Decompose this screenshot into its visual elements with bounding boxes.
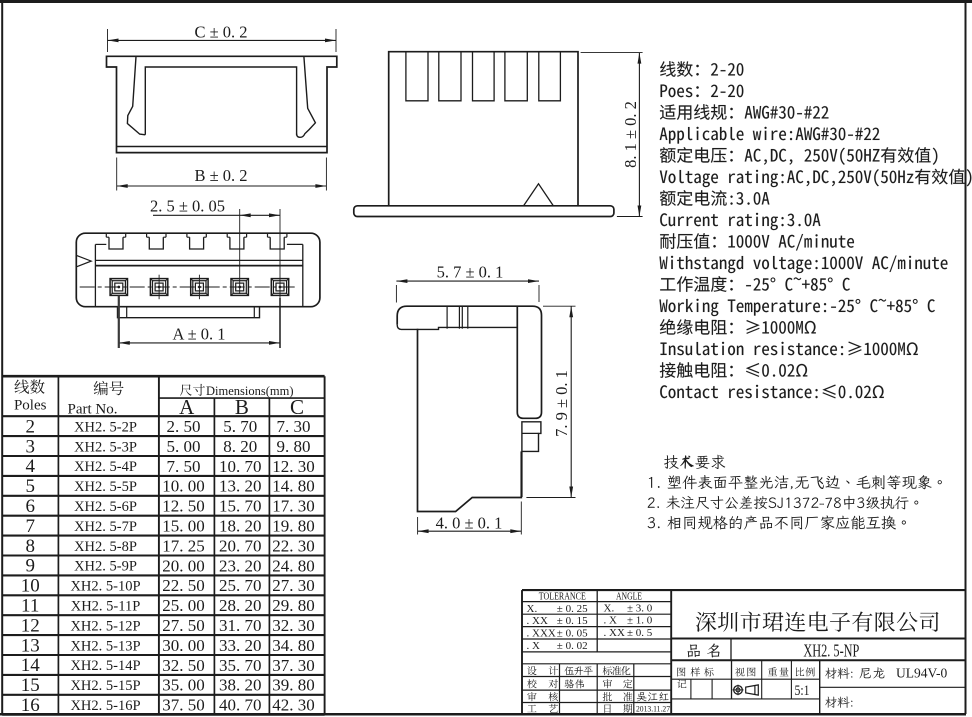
svg-text:17. 25: 17. 25 [162, 536, 205, 555]
svg-text:5: 5 [25, 476, 35, 497]
svg-text:8. 1 ± 0. 2: 8. 1 ± 0. 2 [621, 101, 640, 168]
svg-text:7. 30: 7. 30 [277, 417, 311, 436]
svg-text:3: 3 [25, 436, 35, 457]
svg-text:35. 00: 35. 00 [162, 676, 205, 695]
svg-text:. X: . X [527, 640, 541, 652]
svg-text:B: B [235, 395, 249, 419]
svg-text:± 0. 15: ± 0. 15 [557, 615, 588, 627]
svg-text:XH2. 5-12P: XH2. 5-12P [70, 618, 140, 634]
svg-text:XH2. 5-3P: XH2. 5-3P [74, 439, 137, 455]
svg-text:Dimensions(mm): Dimensions(mm) [206, 384, 294, 398]
svg-text:X.: X. [604, 602, 615, 614]
svg-text:2. 50: 2. 50 [167, 417, 201, 436]
svg-text:± 0. 02: ± 0. 02 [557, 640, 588, 652]
svg-text:37. 30: 37. 30 [272, 656, 315, 675]
svg-text:X.: X. [527, 603, 538, 615]
svg-text:27. 50: 27. 50 [162, 616, 205, 635]
svg-text:18. 20: 18. 20 [219, 517, 262, 536]
svg-text:20. 70: 20. 70 [219, 536, 262, 555]
svg-text:± 1. 0: ± 1. 0 [627, 615, 653, 627]
svg-text:13: 13 [21, 635, 40, 656]
svg-text:Poles: Poles [14, 398, 47, 414]
svg-text:15. 00: 15. 00 [162, 517, 205, 536]
svg-text:XH2. 5-14P: XH2. 5-14P [70, 658, 140, 674]
svg-text:. XXX: . XXX [527, 628, 556, 640]
svg-text:20. 00: 20. 00 [162, 556, 205, 575]
svg-text:4. 0 ± 0. 1: 4. 0 ± 0. 1 [436, 513, 503, 532]
svg-text:± 0. 05: ± 0. 05 [557, 628, 588, 640]
svg-text:14: 14 [21, 655, 41, 676]
svg-text:34. 80: 34. 80 [272, 636, 315, 655]
svg-text:4: 4 [25, 456, 35, 477]
svg-text:10. 70: 10. 70 [219, 457, 262, 476]
svg-text:32. 50: 32. 50 [162, 656, 205, 675]
svg-text:22. 30: 22. 30 [272, 536, 315, 555]
svg-text:32. 30: 32. 30 [272, 616, 315, 635]
svg-text:24. 80: 24. 80 [272, 556, 315, 575]
svg-text:XH2. 5-7P: XH2. 5-7P [74, 519, 137, 535]
svg-text:A ± 0. 1: A ± 0. 1 [172, 325, 225, 344]
svg-text:35. 70: 35. 70 [219, 656, 262, 675]
svg-text:A: A [179, 395, 195, 419]
svg-text:± 0. 25: ± 0. 25 [557, 603, 588, 615]
svg-text:31. 70: 31. 70 [219, 616, 262, 635]
svg-text:13. 20: 13. 20 [219, 477, 262, 496]
svg-text:TOLERANCE: TOLERANCE [539, 590, 586, 602]
svg-text:17. 30: 17. 30 [272, 497, 315, 516]
svg-text:XH2. 5-NP: XH2. 5-NP [803, 640, 859, 660]
svg-text:9. 80: 9. 80 [277, 437, 311, 456]
svg-text:XH2. 5-10P: XH2. 5-10P [70, 579, 140, 595]
svg-text:C ± 0. 2: C ± 0. 2 [194, 23, 247, 42]
svg-text:XH2. 5-11P: XH2. 5-11P [71, 599, 141, 615]
svg-text:B ± 0. 2: B ± 0. 2 [194, 166, 247, 185]
svg-text:XH2. 5-4P: XH2. 5-4P [74, 459, 137, 475]
svg-text:XH2. 5-9P: XH2. 5-9P [74, 559, 137, 575]
svg-text:XH2. 5-5P: XH2. 5-5P [74, 479, 137, 495]
svg-text:42. 30: 42. 30 [272, 696, 315, 715]
svg-text:XH2. 5-13P: XH2. 5-13P [70, 638, 140, 654]
svg-text:XH2. 5-15P: XH2. 5-15P [70, 678, 140, 694]
svg-text:37. 50: 37. 50 [162, 696, 205, 715]
svg-text:15: 15 [21, 675, 40, 696]
svg-text:16: 16 [21, 695, 40, 716]
svg-text:11: 11 [21, 596, 39, 617]
svg-text:15. 70: 15. 70 [219, 497, 262, 516]
svg-text:7: 7 [25, 516, 35, 537]
svg-text:38. 20: 38. 20 [219, 676, 262, 695]
svg-text:10. 00: 10. 00 [162, 477, 205, 496]
svg-text:C: C [290, 395, 304, 419]
svg-text:28. 20: 28. 20 [219, 596, 262, 615]
svg-text:XH2. 5-6P: XH2. 5-6P [74, 499, 137, 515]
svg-text:19. 80: 19. 80 [272, 517, 315, 536]
svg-text:25. 00: 25. 00 [162, 596, 205, 615]
svg-text:XH2. 5-8P: XH2. 5-8P [74, 539, 137, 555]
svg-text:Part No.: Part No. [68, 402, 118, 418]
svg-text:40. 70: 40. 70 [219, 696, 262, 715]
svg-text:5. 70: 5. 70 [223, 417, 257, 436]
svg-text:2: 2 [25, 416, 35, 437]
svg-text:14. 80: 14. 80 [272, 477, 315, 496]
svg-text:. XX: . XX [527, 615, 548, 627]
svg-text:23. 20: 23. 20 [219, 556, 262, 575]
svg-text:22. 50: 22. 50 [162, 576, 205, 595]
svg-text:5. 7 ± 0. 1: 5. 7 ± 0. 1 [437, 263, 504, 282]
svg-text:8: 8 [25, 536, 35, 557]
svg-text:5. 00: 5. 00 [167, 437, 201, 456]
svg-text:39. 80: 39. 80 [272, 676, 315, 695]
svg-text:25. 70: 25. 70 [219, 576, 262, 595]
svg-text:7. 9 ± 0. 1: 7. 9 ± 0. 1 [552, 370, 571, 437]
svg-text:12. 30: 12. 30 [272, 457, 315, 476]
svg-text:. XX: . XX [604, 627, 625, 639]
svg-text:± 0. 5: ± 0. 5 [627, 627, 653, 639]
svg-text:XH2. 5-16P: XH2. 5-16P [70, 698, 140, 714]
svg-text:12: 12 [21, 615, 40, 636]
svg-text:8. 20: 8. 20 [223, 437, 257, 456]
svg-text:10: 10 [21, 576, 40, 597]
svg-text:12. 50: 12. 50 [162, 497, 205, 516]
svg-text:XH2. 5-2P: XH2. 5-2P [74, 419, 137, 435]
svg-text:7. 50: 7. 50 [167, 457, 201, 476]
svg-text:± 3. 0: ± 3. 0 [627, 602, 653, 614]
svg-text:29. 80: 29. 80 [272, 596, 315, 615]
svg-text:2. 5 ± 0. 05: 2. 5 ± 0. 05 [150, 197, 225, 216]
svg-text:27. 30: 27. 30 [272, 576, 315, 595]
svg-text:6: 6 [25, 496, 35, 517]
svg-text:5:1: 5:1 [795, 683, 810, 699]
svg-text:33. 20: 33. 20 [219, 636, 262, 655]
svg-text:UL94V-0: UL94V-0 [896, 666, 948, 681]
svg-text:ANGLE: ANGLE [616, 590, 642, 602]
svg-text:9: 9 [25, 556, 35, 577]
svg-text:30. 00: 30. 00 [162, 636, 205, 655]
svg-text:. X: . X [604, 615, 618, 627]
svg-text:2013.11.27: 2013.11.27 [636, 704, 670, 713]
